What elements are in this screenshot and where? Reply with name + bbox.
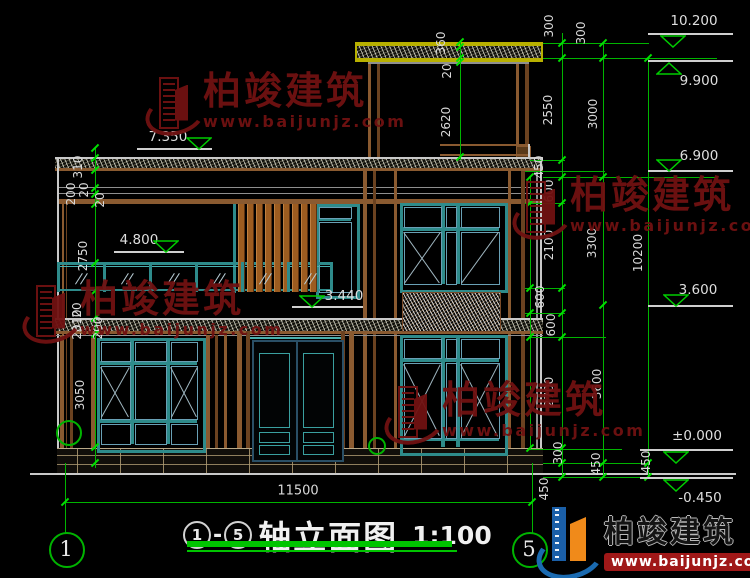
watermark-brand-text: 柏竣建筑	[80, 280, 283, 318]
dimension-label: 2750	[76, 241, 90, 272]
watermark: 柏竣建筑www.baijunjz.com	[24, 280, 283, 339]
watermark-brand-text: 柏竣建筑	[570, 176, 750, 214]
eave-line	[57, 193, 540, 194]
dimension-label: 20	[93, 192, 107, 207]
door-panel	[259, 445, 290, 455]
dimension-label: 11500	[277, 484, 318, 499]
window-pane	[461, 339, 500, 359]
logo-url-banner: www.baijunjz.com	[604, 553, 750, 571]
logo-building-icon	[538, 503, 596, 575]
watermark-logo-icon	[514, 177, 564, 235]
level-triangle-icon	[663, 449, 689, 462]
wood-slat	[247, 204, 254, 292]
door-panel	[303, 353, 334, 428]
level-triangle-icon	[663, 477, 689, 490]
spandrel-panel	[402, 292, 501, 332]
dimension-label: 600	[533, 286, 547, 309]
center-wall	[363, 171, 367, 460]
window-pane	[101, 424, 131, 445]
watermark-url-text: www.baijunjz.com	[80, 320, 283, 339]
dimension-label: 300	[551, 442, 565, 465]
window-pane	[446, 207, 457, 228]
penthouse-roof-slab	[355, 42, 357, 62]
window-pane	[171, 342, 198, 362]
window-pane	[404, 207, 442, 228]
dimension-line	[530, 449, 622, 450]
window-pane	[461, 232, 500, 285]
parapet-beam	[440, 144, 530, 146]
dimension-line	[65, 502, 532, 503]
level-triangle-icon	[656, 157, 682, 170]
column-axis-circle	[56, 420, 82, 446]
dimension-label: 600	[544, 314, 558, 337]
dimension-line	[648, 58, 649, 477]
watermark-logo-icon	[24, 281, 74, 339]
level-line	[648, 305, 733, 307]
level-triangle-icon	[186, 135, 212, 148]
watermark-logo-icon	[147, 73, 197, 131]
level-triangle-icon	[656, 60, 682, 73]
dimension-label: 310	[71, 156, 85, 179]
window-pane	[446, 232, 457, 285]
level-triangle-icon	[153, 238, 179, 251]
cad-elevation-drawing: 1 - 5 轴立面图 1:100 1 5 柏竣建筑 www.baijunjz.c…	[0, 0, 750, 578]
door-panel	[303, 432, 334, 443]
dimension-label: 300	[542, 15, 556, 38]
penthouse-roof-slab	[355, 46, 543, 58]
window-pane	[461, 207, 500, 228]
gf-wall	[224, 335, 227, 448]
main-roof-slab	[55, 159, 543, 168]
axis-number-1: 1	[59, 537, 72, 561]
watermark-brand-text: 柏竣建筑	[442, 381, 645, 419]
penthouse-wall	[516, 62, 519, 157]
window-pane	[135, 342, 167, 362]
dimension-label: 200	[64, 183, 78, 206]
door-jamb	[246, 331, 250, 458]
door-panel	[259, 353, 290, 428]
penthouse-roof-slab	[541, 42, 543, 62]
window-pane	[319, 207, 352, 219]
dimension-line	[530, 337, 606, 338]
door-jamb	[349, 331, 354, 458]
watermark-url-text: www.baijunjz.com	[442, 421, 645, 440]
title-underline-thin	[187, 550, 457, 552]
dimension-label: 10200	[631, 234, 645, 272]
window-pane	[171, 424, 198, 445]
door-panel	[303, 445, 334, 455]
dimension-label: 300	[574, 22, 588, 45]
penthouse-wall	[525, 62, 529, 157]
window-pane	[446, 339, 457, 359]
dimension-label: 450	[589, 453, 603, 476]
level-value: 9.900	[680, 73, 719, 89]
door-panel	[259, 432, 290, 443]
center-wall	[373, 171, 376, 460]
dimension-label: 20	[440, 63, 454, 78]
logo-tower-orange	[570, 517, 586, 561]
parapet-beam	[528, 144, 530, 157]
dimension-label: 360	[434, 32, 448, 55]
watermark-url-text: www.baijunjz.com	[570, 216, 750, 235]
gf-wall	[215, 335, 218, 448]
axis-number-5: 5	[522, 537, 535, 561]
watermark-url-text: www.baijunjz.com	[203, 112, 406, 131]
window-pane	[319, 222, 352, 293]
parapet-beam	[440, 154, 530, 156]
level-value: -0.450	[678, 490, 722, 506]
gf-wall	[206, 335, 210, 448]
watermark-logo-icon	[386, 382, 436, 440]
window-pane	[135, 424, 167, 445]
level-value: 6.900	[680, 148, 719, 164]
level-value: 3.440	[325, 288, 364, 304]
eave-line	[57, 187, 540, 188]
level-triangle-icon	[299, 293, 325, 306]
window-pane	[135, 366, 167, 420]
level-triangle-icon	[660, 33, 686, 46]
ground-line	[30, 473, 736, 475]
door-jamb	[237, 331, 242, 458]
column-axis-circle	[368, 437, 386, 455]
title-underline-thick	[187, 541, 452, 547]
dimension-label: 3050	[73, 380, 87, 411]
dimension-line	[543, 58, 717, 59]
logo-brand-text: 柏竣建筑	[604, 507, 750, 551]
company-logo: 柏竣建筑 www.baijunjz.com	[538, 503, 750, 575]
window-pane	[101, 342, 131, 362]
dimension-label: 2620	[439, 107, 453, 138]
dimension-label: 20	[77, 182, 91, 197]
level-value: 10.200	[670, 13, 717, 29]
watermark: 柏竣建筑www.baijunjz.com	[514, 176, 750, 235]
watermark: 柏竣建筑www.baijunjz.com	[386, 381, 645, 440]
main-roof-slab	[55, 168, 543, 171]
window-pane	[404, 339, 442, 359]
dimension-label: 2550	[541, 95, 555, 126]
dimension-label: 3000	[586, 99, 600, 130]
wood-slat	[274, 204, 281, 292]
watermark-brand-text: 柏竣建筑	[203, 72, 406, 110]
watermark: 柏竣建筑www.baijunjz.com	[147, 72, 406, 131]
dimension-label: 450	[537, 478, 551, 501]
wood-slat	[292, 204, 299, 292]
railing-post	[287, 262, 290, 292]
logo-tower-blue	[552, 507, 566, 561]
level-value: ±0.000	[672, 428, 722, 444]
level-triangle-icon	[663, 292, 689, 305]
dimension-label: 450	[639, 451, 653, 474]
